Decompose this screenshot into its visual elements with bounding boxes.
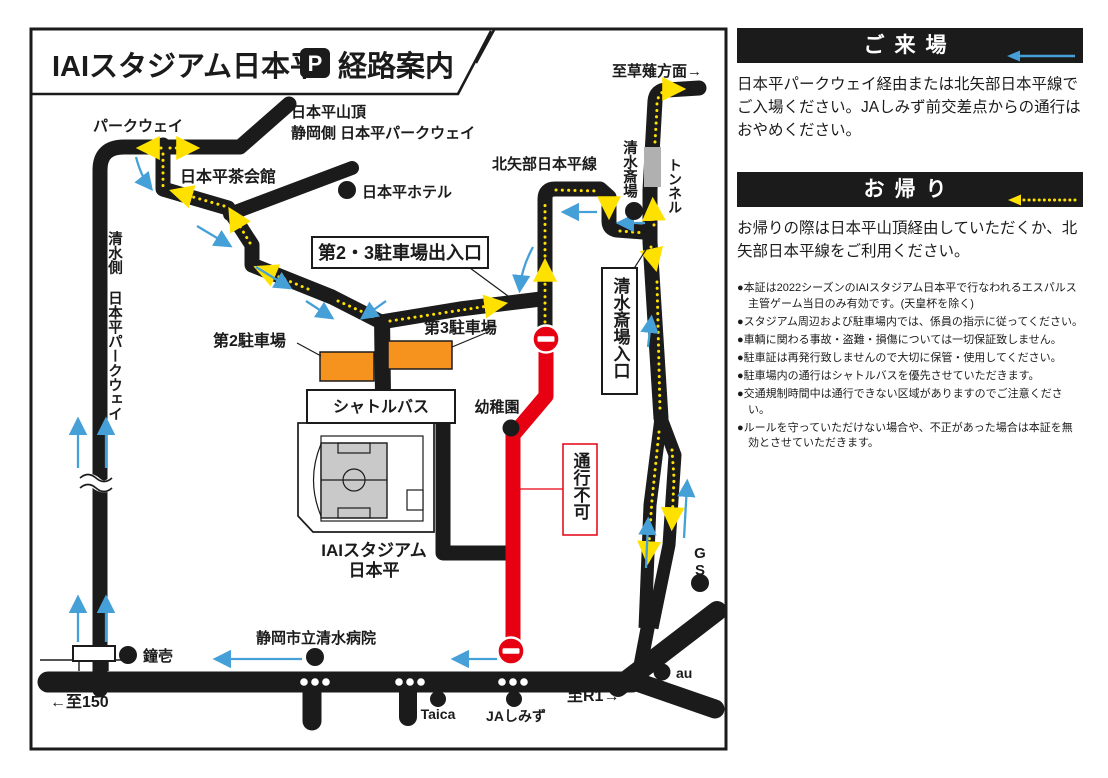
label-au: au [676, 665, 692, 681]
label-to150: ←至150 [50, 693, 109, 711]
note-item: ●スタジアム周辺および駐車場内では、係員の指示に従ってください。 [737, 315, 1083, 331]
kindergarten-dot [503, 420, 520, 437]
label-kusanagi: 至草薙方面→ [612, 62, 702, 80]
label-saijo-entrance: 清水斎場入口 [611, 276, 631, 379]
departure-text: お帰りの際は日本平山頂経由していただくか、北矢部日本平線をご利用ください。 [737, 217, 1083, 263]
label-tunnel: トンネル [667, 158, 683, 214]
label-gate23: 第2・3駐車場出入口 [318, 242, 482, 263]
label-saijo: 清水斎場 [621, 139, 637, 200]
label-hospital: 静岡市立清水病院 [256, 629, 376, 647]
note-item: ●車輌に関わる事故・盗難・損傷については一切保証致しません。 [737, 333, 1083, 349]
ja-shimizu-dot [506, 691, 522, 707]
label-summit-1: 日本平山頂 [291, 103, 367, 121]
arrival-arrow-icon [1005, 39, 1077, 74]
label-no-passage: 通行不可 [571, 452, 592, 521]
parking-badge-letter: P [308, 51, 323, 76]
traffic-light-icons [296, 674, 532, 690]
note-item: ●駐車証は再発行致しませんので大切に保管・使用してください。 [737, 351, 1083, 367]
label-stadium-2: 日本平 [349, 560, 400, 580]
hospital-dot [306, 648, 324, 666]
hotel-dot [338, 181, 356, 199]
label-kindergarten: 幼稚園 [474, 398, 519, 416]
label-taica: Taica [421, 706, 456, 722]
label-stadium-1: IAIスタジアム [321, 541, 427, 560]
road-parking-access [382, 318, 383, 394]
label-summit-2: 静岡側 日本平パークウェイ [291, 124, 475, 142]
title-main: IAIスタジアム日本平 [52, 50, 319, 83]
note-item: ●交通規制時間中は通行できない区域がありますのでご注意ください。 [737, 387, 1083, 418]
arrival-title: ご来場 [864, 34, 957, 57]
label-shuttle: シャトルバス [333, 398, 429, 416]
label-shimizu-side: 清水側 日本平パークウェイ [106, 230, 123, 421]
notes-list: ●本証は2022シーズンのIAIスタジアム日本平で行なわれるエスパルス主管ゲーム… [737, 281, 1083, 452]
label-toR1: 至R1→ [567, 687, 619, 705]
note-item: ●駐車場内の通行はシャトルバスを優先させていただきます。 [737, 369, 1083, 385]
map-title: IAIスタジアム日本平 P 経路案内 [52, 48, 454, 83]
label-ja-shimizu: JAしみず [486, 708, 546, 724]
label-p3: 第3駐車場 [424, 318, 497, 337]
taica-dot [430, 691, 446, 707]
note-item: ●本証は2022シーズンのIAIスタジアム日本平で行なわれるエスパルス主管ゲーム… [737, 281, 1083, 312]
departure-header: お帰り [737, 172, 1083, 207]
saijo-dot [625, 202, 643, 220]
label-kitayabe: 北矢部日本平線 [492, 155, 597, 173]
label-chakaikan: 日本平茶会館 [180, 167, 276, 186]
arrival-header: ご来場 [737, 28, 1083, 63]
label-hotel: 日本平ホテル [362, 183, 452, 201]
title-suffix: 経路案内 [338, 49, 454, 83]
departure-title: お帰り [864, 178, 957, 201]
parking-lot-3 [388, 341, 452, 369]
route-guide-page: IAIスタジアム日本平 P 経路案内 [0, 0, 1108, 778]
label-kanekichi: 鐘壱 [143, 647, 173, 665]
label-parkway: パークウェイ [93, 118, 183, 135]
note-item: ●ルールを守っていただけない場合や、不正があった場合は本証を無効とさせていただき… [737, 421, 1083, 452]
label-gs: GS [692, 545, 709, 579]
label-p2: 第2駐車場 [213, 331, 286, 350]
stadium-shape [298, 423, 434, 532]
arrival-text: 日本平パークウェイ経由または北矢部日本平線でご入場ください。JAしみず前交差点か… [737, 73, 1083, 142]
kanekichi-dot [119, 646, 137, 664]
parking-lot-2 [320, 352, 374, 381]
info-panel: ご来場 日本平パークウェイ経由または北矢部日本平線でご入場ください。JAしみず前… [737, 28, 1083, 454]
tunnel-segment [644, 147, 661, 187]
departure-arrow-icon [1005, 183, 1077, 218]
au-dot [654, 664, 671, 681]
